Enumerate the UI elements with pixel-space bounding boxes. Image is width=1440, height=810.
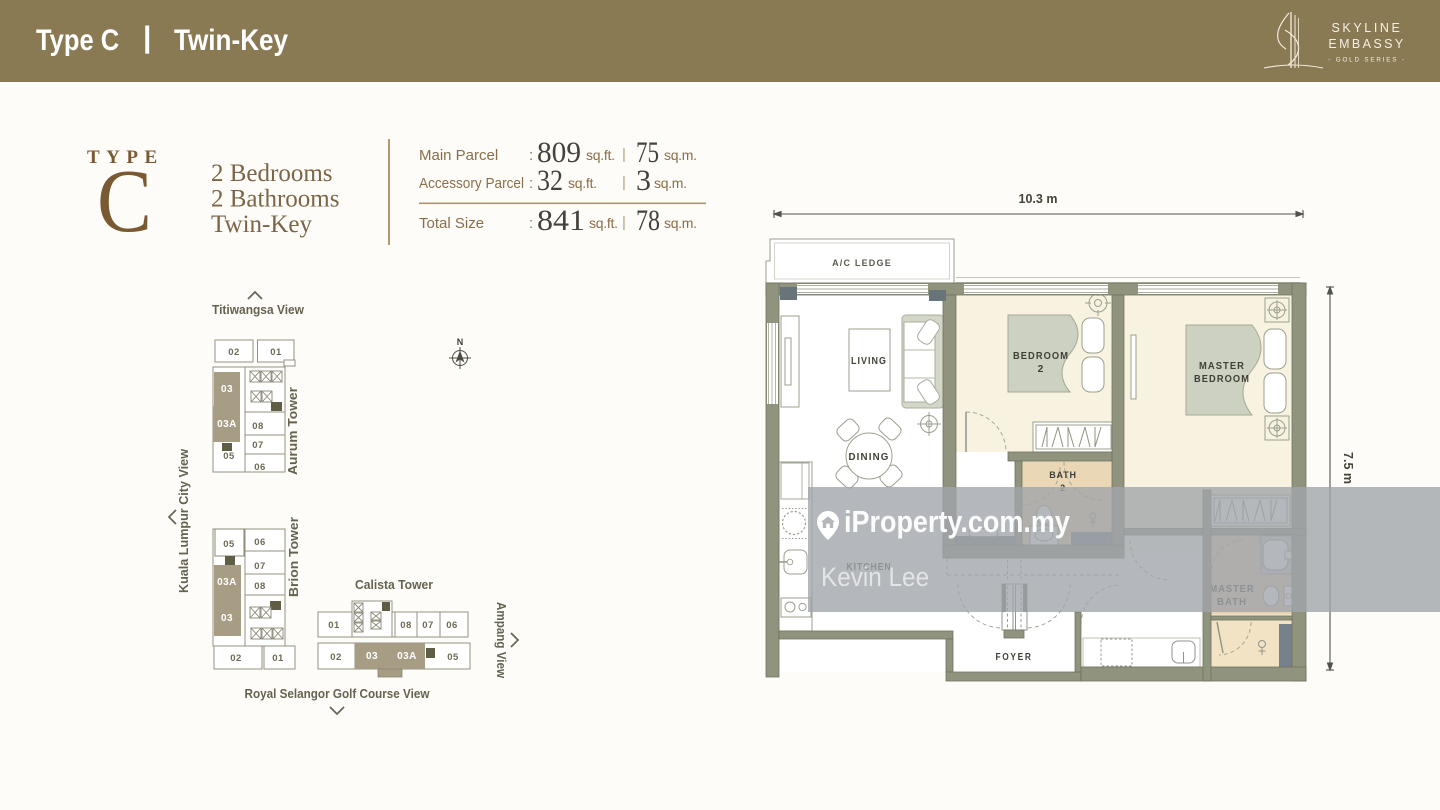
svg-text:08: 08 [254,581,266,592]
svg-text:07: 07 [422,620,434,631]
svg-text:05: 05 [223,451,235,462]
svg-text:- GOLD SERIES -: - GOLD SERIES - [1328,57,1405,64]
svg-text:03: 03 [221,384,233,395]
svg-text:N: N [457,337,464,347]
svg-text:07: 07 [254,561,266,572]
svg-text:MASTER: MASTER [1199,361,1245,372]
svg-text:sq.ft.: sq.ft. [568,175,597,191]
svg-text:|: | [622,214,626,231]
svg-text:03: 03 [366,651,378,662]
svg-text:2 Bathrooms: 2 Bathrooms [211,186,339,213]
svg-text:01: 01 [270,347,282,358]
svg-text:Titiwangsa View: Titiwangsa View [212,303,304,317]
svg-text:02: 02 [330,652,342,663]
svg-text:01: 01 [272,653,284,664]
svg-text:sq.m.: sq.m. [664,215,697,231]
svg-text::: : [529,215,533,232]
svg-text:07: 07 [252,440,264,451]
svg-text::: : [529,175,533,192]
svg-text:|: | [622,146,626,163]
svg-text:Main Parcel: Main Parcel [419,147,498,164]
svg-text:Ampang View: Ampang View [494,602,508,678]
svg-text:sq.m.: sq.m. [654,175,687,191]
svg-text:sq.m.: sq.m. [664,147,697,163]
svg-text:C: C [97,152,152,251]
svg-text:03A: 03A [217,577,237,588]
svg-text:LIVING: LIVING [851,356,887,367]
svg-text:sq.ft.: sq.ft. [586,147,615,163]
svg-text:06: 06 [446,620,458,631]
svg-text:SKYLINE: SKYLINE [1331,21,1402,35]
svg-text:2 Bedrooms: 2 Bedrooms [211,160,333,187]
svg-text:02: 02 [228,347,240,358]
svg-text:10.3 m: 10.3 m [1019,192,1058,206]
svg-text:05: 05 [447,652,459,663]
svg-text:78: 78 [636,204,660,237]
svg-text:2: 2 [1038,364,1045,375]
svg-text:05: 05 [223,539,235,550]
svg-text:FOYER: FOYER [996,652,1033,663]
svg-text:01: 01 [328,620,340,631]
svg-text:Calista Tower: Calista Tower [355,578,433,592]
svg-text:Accessory Parcel: Accessory Parcel [419,175,524,192]
svg-text:Aurum Tower: Aurum Tower [286,387,300,475]
svg-text:A/C LEDGE: A/C LEDGE [832,258,892,268]
svg-text:08: 08 [252,421,264,432]
svg-text:841: 841 [537,204,585,237]
svg-text:BEDROOM: BEDROOM [1013,351,1069,362]
svg-text:Total Size: Total Size [419,215,484,232]
svg-text:7.5 m: 7.5 m [1341,452,1355,484]
svg-text:BATH: BATH [1049,470,1077,480]
svg-text:Kuala Lumpur City View: Kuala Lumpur City View [177,449,191,593]
svg-text:|: | [622,174,626,191]
svg-text:Twin-Key: Twin-Key [211,211,313,238]
svg-text:Brion Tower: Brion Tower [287,517,301,597]
svg-text:32: 32 [537,164,563,197]
svg-text:3: 3 [636,164,651,197]
svg-text:03A: 03A [217,419,237,430]
svg-text:Royal Selangor Golf Course Vie: Royal Selangor Golf Course View [245,687,430,701]
svg-text:03A: 03A [397,651,417,662]
svg-text:DINING: DINING [849,452,890,463]
svg-text:sq.ft.: sq.ft. [589,215,618,231]
svg-text:06: 06 [254,462,266,473]
svg-text:EMBASSY: EMBASSY [1328,37,1405,51]
svg-text:06: 06 [254,537,266,548]
svg-text::: : [529,147,533,164]
svg-text:08: 08 [400,620,412,631]
svg-text:03: 03 [221,613,233,624]
svg-text:02: 02 [230,653,242,664]
svg-text:BEDROOM: BEDROOM [1194,374,1250,385]
